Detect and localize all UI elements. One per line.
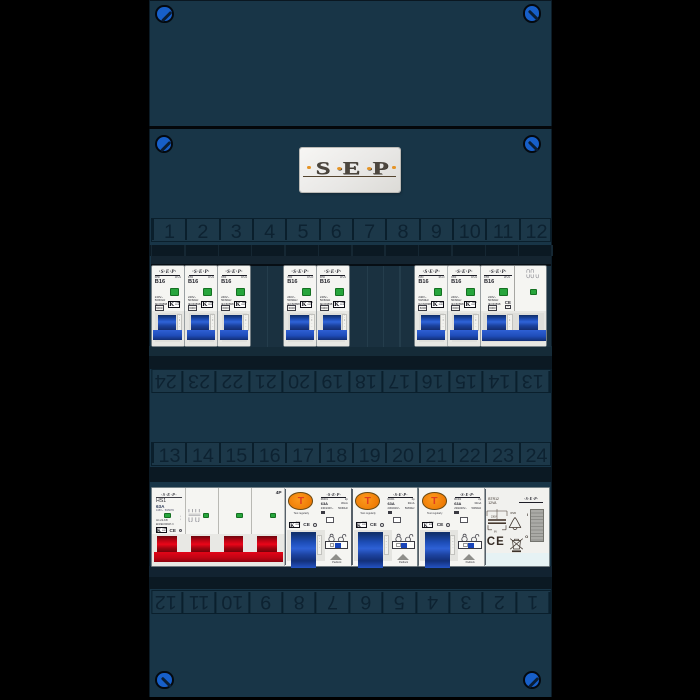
svg-text:8V: 8V <box>494 531 497 533</box>
svg-text:230V: 230V <box>491 516 497 519</box>
